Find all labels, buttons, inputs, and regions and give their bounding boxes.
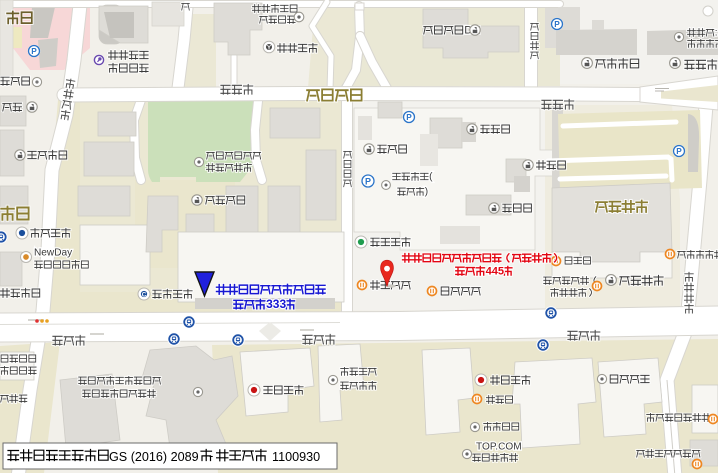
svg-text:445: 445 [486,266,505,278]
svg-text:333: 333 [266,297,286,311]
svg-text:GS (2016) 2089: GS (2016) 2089 [109,450,199,464]
svg-text:1100930: 1100930 [272,450,320,464]
svg-text::: : [715,28,718,39]
svg-text:C: C [142,292,147,299]
svg-text:Y: Y [267,44,271,51]
svg-text:-: - [209,448,213,463]
svg-text:): ) [425,187,428,198]
svg-text:P: P [554,20,560,29]
svg-text:P: P [365,176,371,186]
svg-text:P: P [31,47,37,56]
svg-text:NewDay: NewDay [34,248,73,259]
svg-text:TOP.COM: TOP.COM [476,442,522,453]
svg-text:P: P [676,147,682,156]
svg-text:P: P [406,113,412,122]
